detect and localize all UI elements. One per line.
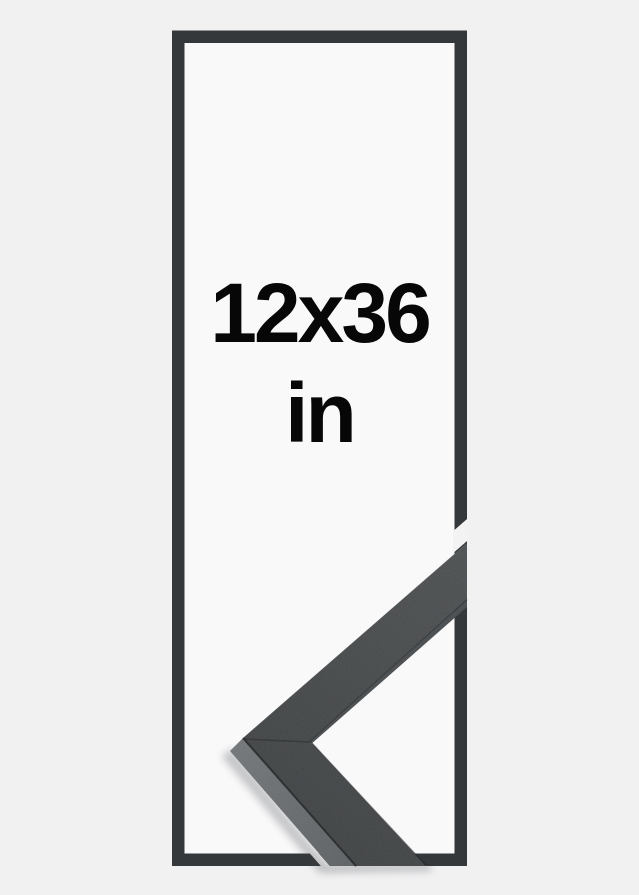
size-dimensions-text: 12x36 <box>172 263 467 363</box>
frame-size-product-image[interactable]: 12x36 in <box>0 0 639 895</box>
size-unit-text: in <box>172 363 467 463</box>
size-label: 12x36 in <box>172 263 467 463</box>
